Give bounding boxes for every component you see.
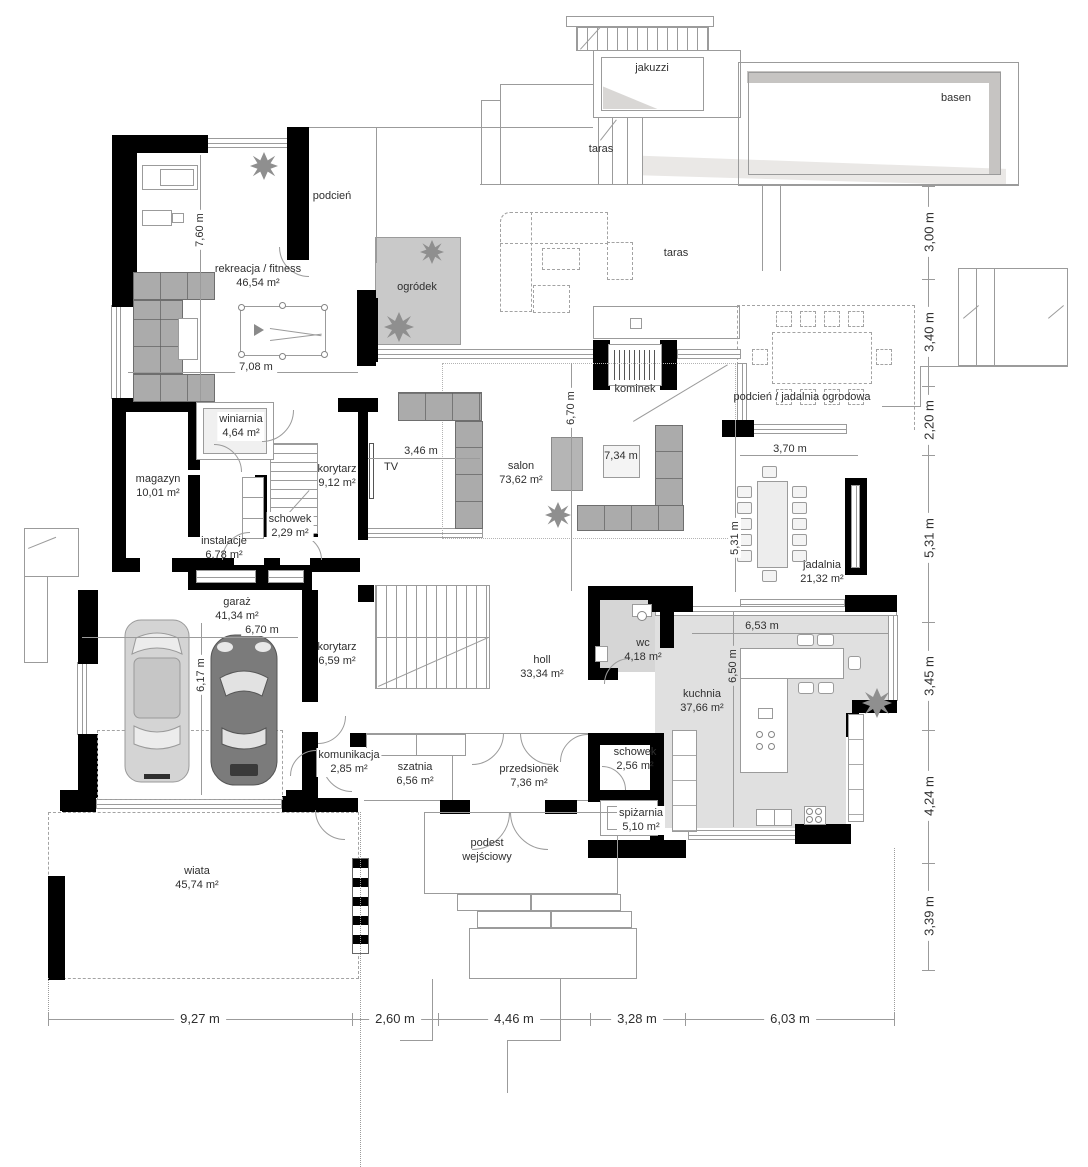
billiard-pocket xyxy=(279,353,286,360)
dim-tick xyxy=(922,622,935,623)
dim-label: 3,46 m xyxy=(400,445,442,457)
wall xyxy=(188,475,200,537)
pool-path xyxy=(780,186,781,271)
line xyxy=(627,117,628,185)
dim-label: 6,17 m xyxy=(195,655,207,695)
pillar xyxy=(286,790,314,811)
line xyxy=(976,268,977,366)
dim-label-bottom: 2,60 m xyxy=(369,1011,421,1026)
dim-tick xyxy=(922,863,935,864)
garden-stairs xyxy=(958,268,1068,366)
dim-label-right: 5,31 m xyxy=(922,513,937,563)
terrace-sofa xyxy=(500,212,532,312)
cooktop-burner xyxy=(768,731,775,738)
room-label-garaz: garaż41,34 m² xyxy=(215,595,258,624)
billiard-pocket xyxy=(238,304,245,311)
wall xyxy=(350,733,366,747)
carport-outline xyxy=(48,812,359,979)
wall xyxy=(588,733,658,745)
toilet-bowl xyxy=(637,611,647,621)
billiard-pocket xyxy=(321,304,328,311)
entrance-step xyxy=(477,911,551,928)
pool-inner xyxy=(748,72,1001,175)
wall xyxy=(310,558,360,572)
dim-label: 6,70 m xyxy=(241,624,283,636)
wall xyxy=(358,585,374,602)
line xyxy=(994,268,995,366)
pool-path xyxy=(762,186,763,271)
bar-stool xyxy=(817,634,834,646)
dim-line xyxy=(368,458,480,459)
wall xyxy=(78,734,98,798)
cooktop-burner xyxy=(815,816,822,823)
dim-tick xyxy=(48,1013,49,1026)
tv-panel xyxy=(369,443,374,499)
wall xyxy=(368,298,378,362)
roof-line xyxy=(309,127,593,128)
room-label-komunikacja: komunikacja2,85 m² xyxy=(316,748,381,777)
dim-chain xyxy=(928,186,929,970)
room-label-jadalnia-ogrodowa: podcień / jadalnia ogrodowa xyxy=(734,390,871,404)
cabinet xyxy=(242,477,264,539)
cooktop-burner xyxy=(806,816,813,823)
wall xyxy=(112,558,140,572)
plant-icon xyxy=(384,312,414,342)
dim-line xyxy=(82,637,298,638)
staircase-divider xyxy=(375,637,490,638)
path-edge xyxy=(507,1040,561,1041)
outdoor-table xyxy=(772,332,872,384)
room-label-holl: holl33,34 m² xyxy=(520,653,563,682)
chair xyxy=(762,570,777,582)
entrance-step xyxy=(531,894,621,911)
bar-stool xyxy=(798,682,814,694)
window xyxy=(851,485,860,568)
room-label-podcien: podcień xyxy=(313,189,352,203)
dim-tick xyxy=(922,279,935,280)
chair xyxy=(737,502,752,514)
line xyxy=(242,497,264,498)
room-label-schowek1: schowek2,29 m² xyxy=(267,512,314,541)
garage-door xyxy=(96,799,282,809)
dim-label: 7,60 m xyxy=(194,210,206,250)
dim-label-bottom: 9,27 m xyxy=(174,1011,226,1026)
room-label-salon: salon73,62 m² xyxy=(499,459,542,488)
dim-line xyxy=(201,623,202,795)
bar-stool xyxy=(797,634,814,646)
outdoor-chair xyxy=(824,311,840,327)
dim-tick xyxy=(922,186,935,187)
chair xyxy=(792,486,807,498)
window xyxy=(268,570,304,583)
chair xyxy=(762,466,777,478)
dim-label-right: 2,20 m xyxy=(922,395,937,445)
dim-label: 7,34 m xyxy=(600,450,642,462)
sofa xyxy=(133,374,215,402)
dim-label: 6,50 m xyxy=(727,646,739,686)
car-suv xyxy=(122,616,192,786)
garden-counter xyxy=(593,306,740,339)
wall xyxy=(287,127,309,260)
sofa xyxy=(398,392,482,421)
dim-line xyxy=(692,633,889,634)
room-label-ogrodek: ogródek xyxy=(397,280,437,294)
door-arc xyxy=(290,688,346,744)
room-label-korytarz1: korytarz9,12 m² xyxy=(317,462,356,491)
dim-label: 6,70 m xyxy=(565,388,577,428)
dim-tick xyxy=(922,455,935,456)
entrance-step xyxy=(551,911,632,928)
window xyxy=(688,830,796,840)
room-label-podest: podest wejściowy xyxy=(452,836,522,865)
sofa xyxy=(655,425,683,506)
room-label-taras: taras xyxy=(664,246,688,260)
room-label-jakuzzi: jakuzzi xyxy=(635,61,669,75)
dim-label-right: 3,39 m xyxy=(922,891,937,941)
path-edge xyxy=(400,1040,433,1041)
billiard-pocket xyxy=(321,351,328,358)
dim-line xyxy=(200,155,201,401)
outdoor-chair xyxy=(848,311,864,327)
outdoor-chair xyxy=(800,311,816,327)
window xyxy=(360,349,594,359)
terrace-table xyxy=(533,285,570,313)
dim-label: 5,31 m xyxy=(729,518,741,558)
sofa xyxy=(133,300,183,374)
room-label-korytarz2: korytarz6,59 m² xyxy=(317,640,356,669)
dim-label: 6,53 m xyxy=(741,620,783,632)
dim-label-right: 3,40 m xyxy=(922,307,937,357)
pillar xyxy=(48,876,65,980)
side-table xyxy=(551,437,583,491)
wall xyxy=(845,595,897,612)
chair xyxy=(792,502,807,514)
outdoor-chair xyxy=(776,311,792,327)
billiard-rack xyxy=(254,324,264,336)
chair xyxy=(792,518,807,530)
room-label-kominek: kominek xyxy=(615,382,656,396)
dim-label-right: 3,45 m xyxy=(922,651,937,701)
terrace-edge xyxy=(480,184,1018,185)
podcien-edge xyxy=(376,127,377,263)
kitchen-cabinets xyxy=(672,730,697,832)
window xyxy=(111,305,121,399)
room-label-schowek2: schowek2,56 m² xyxy=(614,745,657,774)
room-label-instalacje: instalacje6,78 m² xyxy=(201,534,247,563)
line xyxy=(242,518,264,519)
wall xyxy=(588,586,650,600)
dim-line xyxy=(740,455,858,456)
jacuzzi-steps-bar xyxy=(566,16,714,27)
line xyxy=(416,734,417,756)
window xyxy=(205,138,289,148)
bar-stool xyxy=(848,656,861,670)
kitchen-island xyxy=(740,648,844,679)
cooktop-burner xyxy=(815,808,822,815)
washbasin xyxy=(595,646,608,662)
entrance-step xyxy=(457,894,531,911)
path-edge xyxy=(432,979,433,1041)
plant-icon xyxy=(862,688,892,718)
window xyxy=(77,662,87,735)
line xyxy=(774,809,775,826)
cooktop-burner xyxy=(756,731,763,738)
witness-line xyxy=(360,812,361,1167)
billiard-pocket xyxy=(238,351,245,358)
plant-icon xyxy=(545,502,571,528)
plant-icon xyxy=(420,240,444,264)
cooktop-burner xyxy=(806,808,813,815)
treadmill-belt xyxy=(160,169,194,186)
outdoor-chair xyxy=(752,349,768,365)
dim-label: 7,08 m xyxy=(235,361,277,373)
room-label-winiarnia: winiarnia4,64 m² xyxy=(217,412,264,441)
outdoor-chair xyxy=(876,349,892,365)
side-steps xyxy=(24,528,79,577)
dim-label-bottom: 4,46 m xyxy=(488,1011,540,1026)
dining-table xyxy=(757,481,788,568)
room-label-wc: wc4,18 m² xyxy=(624,636,661,665)
dim-line xyxy=(733,612,734,827)
car-sports xyxy=(208,632,280,788)
exercise-bike xyxy=(172,213,184,223)
floor-plan: jakuzzi basen taras taras podcień rekrea… xyxy=(0,0,1088,1167)
wall xyxy=(302,590,318,702)
terrace-edge xyxy=(481,100,482,185)
sofa xyxy=(577,505,684,531)
room-label-wiata: wiata45,74 m² xyxy=(175,864,218,893)
dim-tick xyxy=(590,1013,591,1026)
wall xyxy=(795,824,851,844)
line xyxy=(920,366,1068,367)
cooktop-burner xyxy=(756,743,763,750)
dim-tick xyxy=(685,1013,686,1026)
sink xyxy=(758,708,773,719)
terrace-armchair xyxy=(607,242,633,280)
dim-tick xyxy=(438,1013,439,1026)
dim-tick xyxy=(352,1013,353,1026)
kitchen-cabinets xyxy=(848,714,864,822)
side-steps xyxy=(24,576,48,663)
dim-label-bottom: 3,28 m xyxy=(611,1011,663,1026)
room-label-spizarnia: spiżarnia5,10 m² xyxy=(617,806,665,835)
dim-label-right: 4,24 m xyxy=(922,771,937,821)
room-label-szatnia: szatnia6,56 m² xyxy=(396,760,433,789)
kitchen-island xyxy=(740,678,788,773)
dim-line xyxy=(735,420,736,592)
dim-tick xyxy=(894,1013,895,1026)
room-label-fitness: rekreacja / fitness46,54 m² xyxy=(215,262,301,291)
wall xyxy=(310,798,358,812)
wall xyxy=(588,745,600,795)
terrace-table xyxy=(542,248,580,270)
room-label-tv: TV xyxy=(384,460,398,474)
terrace-edge xyxy=(481,100,501,101)
witness-line xyxy=(894,848,895,1019)
entrance-step xyxy=(469,928,637,979)
sofa xyxy=(133,272,215,300)
counter-sink xyxy=(630,318,642,329)
wall xyxy=(112,412,126,538)
dim-label-bottom: 6,03 m xyxy=(764,1011,816,1026)
wall xyxy=(358,403,368,540)
dim-tick xyxy=(922,386,935,387)
room-label-przedsionek: przedsionek7,36 m² xyxy=(499,762,558,791)
window xyxy=(196,570,256,583)
path-edge xyxy=(507,1040,508,1093)
billiard-pocket xyxy=(279,302,286,309)
wall xyxy=(660,600,674,648)
sofa xyxy=(455,421,483,529)
dim-label: 3,70 m xyxy=(769,443,811,455)
window xyxy=(677,349,741,359)
chair xyxy=(737,486,752,498)
room-label-taras: taras xyxy=(589,142,613,156)
dim-tick xyxy=(922,730,935,731)
room-label-jadalnia: jadalnia21,32 m² xyxy=(800,558,843,587)
pillar xyxy=(60,790,94,811)
wall xyxy=(78,590,98,664)
terrace-edge xyxy=(500,84,594,85)
plant-icon xyxy=(250,152,278,180)
room-label-basen: basen xyxy=(941,91,971,105)
coffee-table xyxy=(178,318,198,360)
chair xyxy=(792,534,807,546)
path-edge xyxy=(560,979,561,1041)
room-label-magazyn: magazyn10,01 m² xyxy=(136,472,181,501)
room-label-kuchnia: kuchnia37,66 m² xyxy=(680,687,723,716)
cooktop-burner xyxy=(768,743,775,750)
dim-tick xyxy=(922,970,935,971)
billiard-table xyxy=(240,306,326,356)
bar-stool xyxy=(818,682,834,694)
dim-label-right: 3,00 m xyxy=(922,207,937,257)
exercise-bike xyxy=(142,210,172,226)
